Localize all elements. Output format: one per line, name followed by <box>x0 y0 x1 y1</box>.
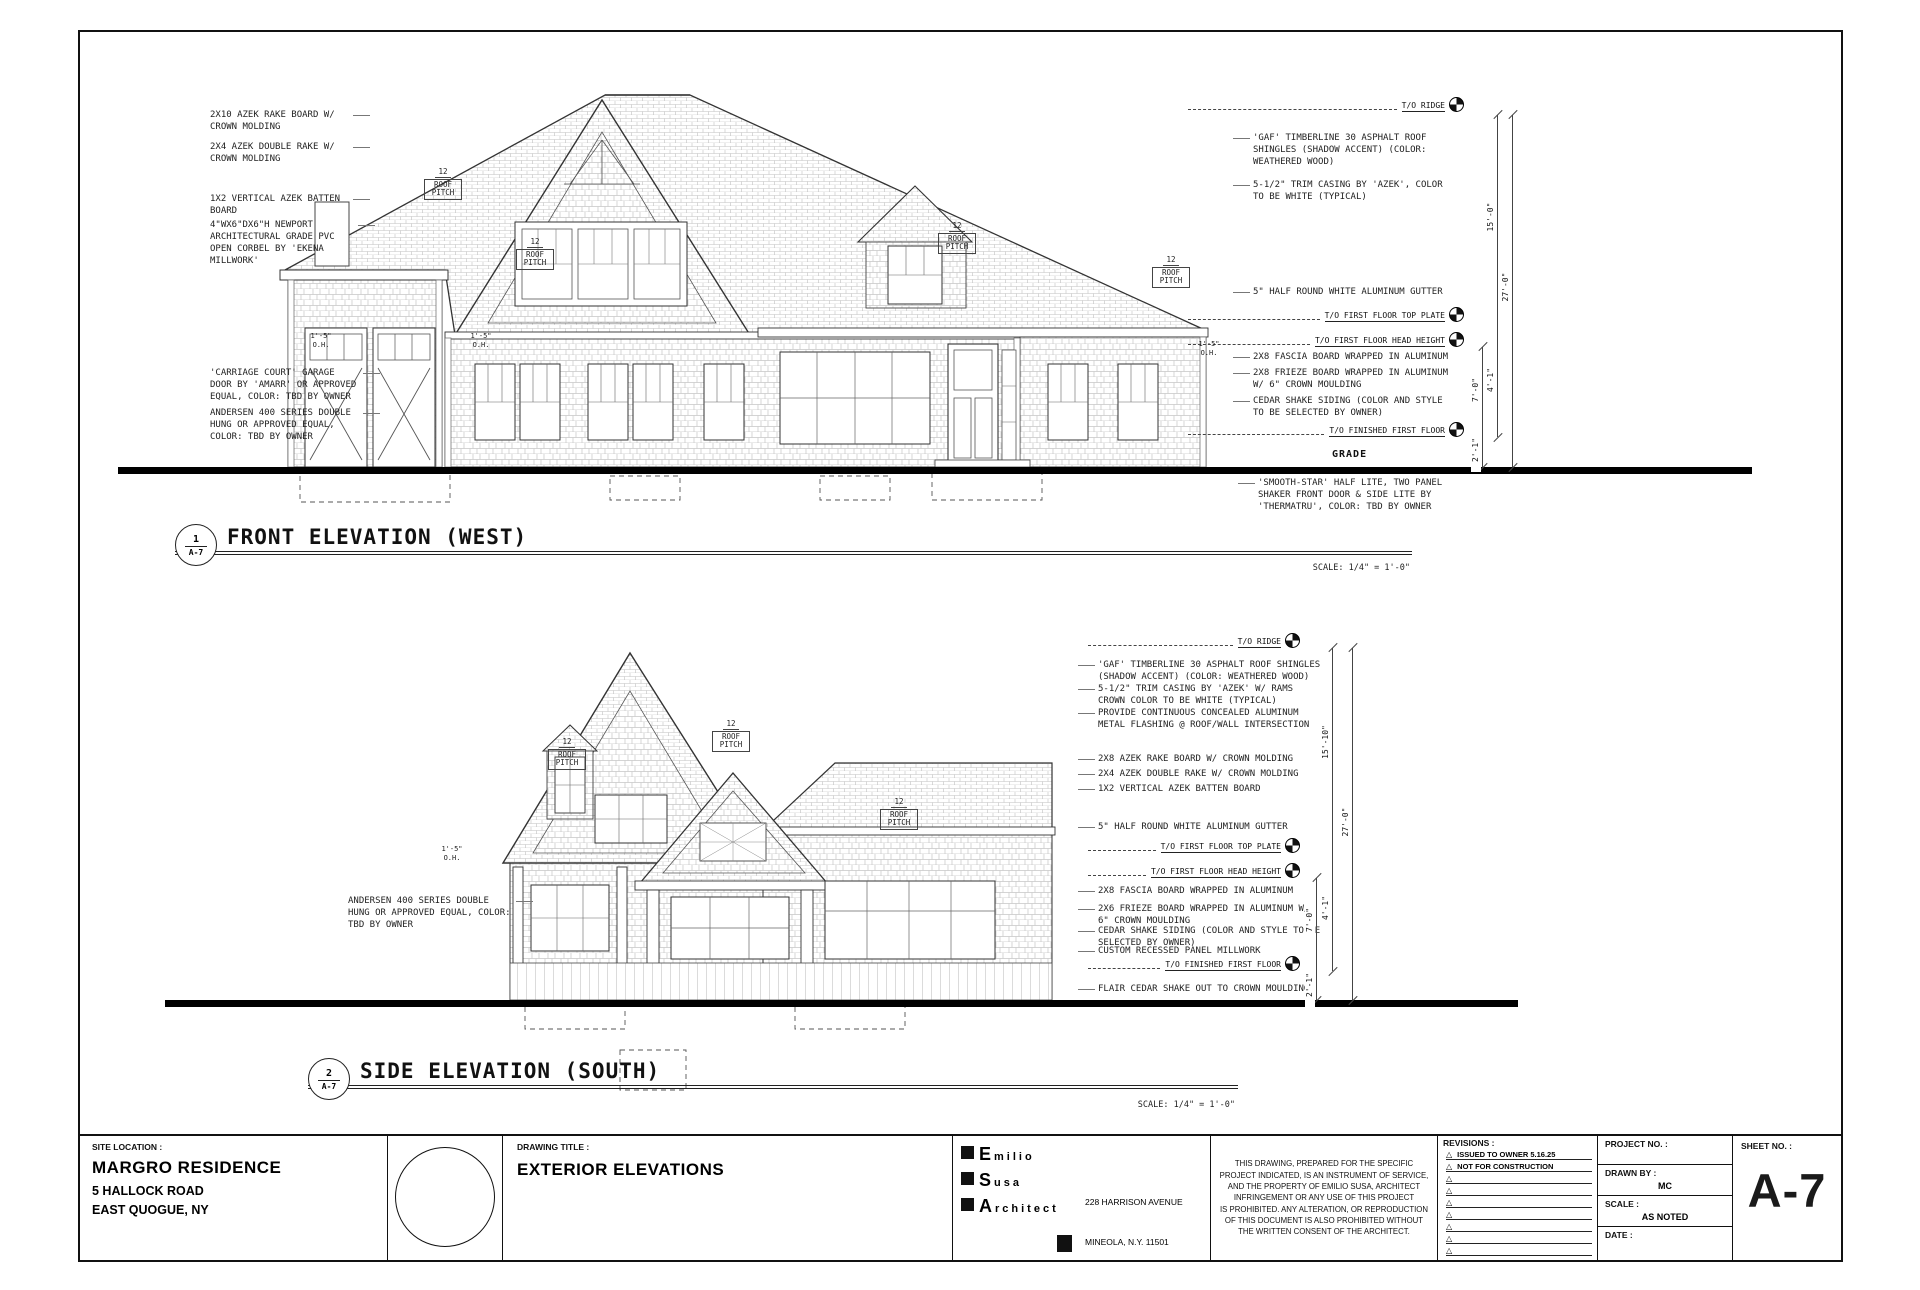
annotation-note: 'GAF' TIMBERLINE 30 ASPHALT ROOF SHINGLE… <box>1098 660 1328 684</box>
roof-pitch-marker: 12ROOF PITCH <box>938 222 976 254</box>
level-label: T/O RIDGE <box>1402 101 1445 112</box>
annotation-note: 5-1/2" TRIM CASING BY 'AZEK' W/ RAMS CRO… <box>1098 684 1318 708</box>
revision-row <box>1446 1184 1592 1196</box>
level-line: T/O FIRST FLOOR HEAD HEIGHT <box>1088 863 1300 878</box>
drawing-title-cell: DRAWING TITLE : EXTERIOR ELEVATIONS <box>503 1136 953 1260</box>
dimension-line <box>1316 878 1317 1000</box>
datum-icon <box>1449 307 1464 322</box>
annotation-note: 'SMOOTH-STAR' HALF LITE, TWO PANEL SHAKE… <box>1258 478 1458 514</box>
project-no-label: PROJECT NO. : <box>1605 1139 1725 1149</box>
revision-triangle-icon <box>1446 1175 1452 1183</box>
annotation-note: PROVIDE CONTINUOUS CONCEALED ALUMINUM ME… <box>1098 708 1328 732</box>
annotation-note: 2x8 FRIEZE BOARD WRAPPED IN ALUMINUM W/ … <box>1253 368 1453 392</box>
level-label: T/O FIRST FLOOR TOP PLATE <box>1325 311 1445 322</box>
level-label: T/O FIRST FLOOR TOP PLATE <box>1161 842 1281 853</box>
revision-row: ISSUED TO OWNER 5.16.25 <box>1446 1148 1592 1160</box>
view-number: 1 <box>185 534 207 547</box>
view-number: 2 <box>318 1068 340 1081</box>
dimension-label: 15'-10" <box>1321 720 1331 764</box>
annotation-note: 2x8 AZEK RAKE BOARD w/ CROWN MOLDING <box>1098 754 1338 766</box>
annotation-note: 'CARRIAGE COURT' GARAGE DOOR BY 'AMARR' … <box>210 368 360 404</box>
front-footings <box>300 472 1042 502</box>
roof-pitch-marker: 12ROOF PITCH <box>548 738 586 770</box>
architect-address-line: MINEOLA, N.Y. 11501 <box>1085 1236 1211 1249</box>
view-title-text: SIDE ELEVATION (SOUTH) <box>360 1059 660 1083</box>
sheet-number: A-7 <box>1741 1163 1833 1218</box>
revisions-label: REVISIONS : <box>1443 1138 1592 1148</box>
annotation-note: 4"Wx6"Dx6"H NEWPORT ARCHITECTURAL GRADE … <box>210 220 355 268</box>
side-base-skirt <box>510 963 1052 1000</box>
annotation-note: 1x2 VERTICAL AZEK BATTEN BOARD <box>210 194 350 218</box>
level-label: T/O FINISHED FIRST FLOOR <box>1165 960 1281 971</box>
level-line: T/O FIRST FLOOR TOP PLATE <box>1188 307 1464 322</box>
date-label: DATE : <box>1605 1230 1725 1240</box>
annotation-note: ANDERSEN 400 SERIES DOUBLE HUNG OR APPRO… <box>210 408 360 444</box>
view-sheet-ref: A-7 <box>322 1081 336 1091</box>
revision-text: ISSUED TO OWNER 5.16.25 <box>1455 1150 1555 1159</box>
dimension-label: 7'-0" <box>1471 368 1481 412</box>
site-location-label: SITE LOCATION : <box>92 1142 375 1152</box>
overhang-label: 1'-5" O.H. <box>306 332 336 350</box>
annotation-note: 2x8 FASCIA BOARD WRAPPED IN ALUMINUM <box>1253 352 1463 364</box>
revision-triangle-icon <box>1446 1247 1452 1255</box>
revision-row: NOT FOR CONSTRUCTION <box>1446 1160 1592 1172</box>
roof-pitch-marker: 12ROOF PITCH <box>1152 256 1190 288</box>
view-title-text: FRONT ELEVATION (WEST) <box>227 525 527 549</box>
datum-icon <box>1449 332 1464 347</box>
revisions-cell: REVISIONS : ISSUED TO OWNER 5.16.25 NOT … <box>1438 1136 1598 1260</box>
revision-row <box>1446 1244 1592 1256</box>
revision-triangle-icon <box>1446 1199 1452 1207</box>
dimension-line <box>1512 115 1513 467</box>
square-bullet-icon <box>961 1146 974 1159</box>
site-address-line2: EAST QUOGUE, NY <box>92 1201 375 1220</box>
logo-cell <box>388 1136 503 1260</box>
revision-row <box>1446 1220 1592 1232</box>
dimension-label: 4'-1" <box>1486 358 1496 402</box>
architect-name-line: Architect <box>979 1196 1059 1217</box>
dimension-label: 27'-0" <box>1341 800 1351 844</box>
dimension-label: 27'-0" <box>1501 265 1511 309</box>
annotation-note: 2x6 FRIEZE BOARD WRAPPED IN ALUMINUM W/ … <box>1098 904 1323 928</box>
revision-triangle-icon <box>1446 1235 1452 1243</box>
scale-value: AS NOTED <box>1605 1212 1725 1222</box>
drawn-by-value: MC <box>1605 1181 1725 1191</box>
level-label: T/O RIDGE <box>1238 637 1281 648</box>
dimension-label: 7'-0" <box>1305 898 1315 942</box>
level-line: T/O FIRST FLOOR TOP PLATE <box>1088 838 1300 853</box>
revision-triangle-icon <box>1446 1223 1452 1231</box>
roof-pitch-marker: 12ROOF PITCH <box>424 168 462 200</box>
disclaimer-text: THIS DRAWING, PREPARED FOR THE SPECIFIC … <box>1220 1158 1429 1237</box>
annotation-note: ANDERSEN 400 SERIES DOUBLE HUNG OR APPRO… <box>348 896 513 932</box>
dimension-line <box>1332 648 1333 971</box>
grade-line <box>118 467 1752 474</box>
sheet-no-cell: SHEET NO. : A-7 <box>1733 1136 1841 1260</box>
square-bullet-icon <box>961 1198 974 1211</box>
datum-icon <box>1285 633 1300 648</box>
roof-pitch-marker: 12ROOF PITCH <box>516 238 554 270</box>
architect-address-line: 228 HARRISON AVENUE <box>1085 1196 1211 1209</box>
disclaimer-cell: THIS DRAWING, PREPARED FOR THE SPECIFIC … <box>1211 1136 1438 1260</box>
datum-icon <box>1285 863 1300 878</box>
overhang-label: 1'-5" O.H. <box>466 332 496 350</box>
annotation-note: 2x4 AZEK DOUBLE RAKE w/ CROWN MOLDING <box>1098 769 1338 781</box>
logo-circle <box>395 1147 495 1247</box>
revision-triangle-icon <box>1446 1187 1452 1195</box>
scale-label: SCALE : <box>1605 1199 1725 1209</box>
annotation-note: 1x2 VERTICAL AZEK BATTEN BOARD <box>1098 784 1338 796</box>
level-line: T/O FIRST FLOOR HEAD HEIGHT <box>1188 332 1464 347</box>
level-line: T/O RIDGE <box>1088 633 1300 648</box>
front-entry-door <box>935 344 1030 467</box>
annotation-note: 5" HALF ROUND WHITE ALUMINUM GUTTER <box>1098 822 1338 834</box>
annotation-note: 2x4 AZEK DOUBLE RAKE w/ CROWN MOLDING <box>210 142 350 166</box>
architect-cell: Emilio Susa Architect 228 HARRISON AVENU… <box>953 1136 1211 1260</box>
annotation-note: 2x8 FASCIA BOARD WRAPPED IN ALUMINUM <box>1098 886 1338 898</box>
level-label: T/O FIRST FLOOR HEAD HEIGHT <box>1315 336 1445 347</box>
sheet-no-label: SHEET NO. : <box>1741 1141 1833 1151</box>
datum-icon <box>1449 422 1464 437</box>
revision-text: NOT FOR CONSTRUCTION <box>1455 1162 1553 1171</box>
level-line: T/O RIDGE <box>1188 97 1464 112</box>
front-elevation-drawing <box>260 80 1220 512</box>
title-block: SITE LOCATION : MARGRO RESIDENCE 5 HALLO… <box>78 1134 1843 1262</box>
project-info-cell: PROJECT NO. : DRAWN BY : MC SCALE : AS N… <box>1598 1136 1733 1260</box>
annotation-note: 5" HALF ROUND WHITE ALUMINUM GUTTER <box>1253 287 1463 299</box>
grade-label: GRADE <box>1332 449 1367 460</box>
datum-icon <box>1285 838 1300 853</box>
revision-row <box>1446 1208 1592 1220</box>
roof-pitch-marker: 12ROOF PITCH <box>712 720 750 752</box>
level-label: T/O FINISHED FIRST FLOOR <box>1329 426 1445 437</box>
site-name: MARGRO RESIDENCE <box>92 1158 375 1178</box>
dimension-label: 4'-1" <box>1321 886 1331 930</box>
view-marker: 2 A-7 <box>308 1058 350 1100</box>
level-label: T/O FIRST FLOOR HEAD HEIGHT <box>1151 867 1281 878</box>
drawing-title: EXTERIOR ELEVATIONS <box>517 1160 938 1180</box>
drawn-by-label: DRAWN BY : <box>1605 1168 1725 1178</box>
annotation-note: 2x10 AZEK RAKE BOARD w/ CROWN MOLDING <box>210 110 350 134</box>
annotation-note: 'GAF' TIMBERLINE 30 ASPHALT ROOF SHINGLE… <box>1253 133 1453 169</box>
site-location-cell: SITE LOCATION : MARGRO RESIDENCE 5 HALLO… <box>80 1136 388 1260</box>
dimension-label: 2'-1" <box>1471 428 1481 472</box>
architect-name-line: Susa <box>979 1170 1022 1191</box>
annotation-note: FLAIR CEDAR SHAKE OUT TO CROWN MOULDING <box>1098 984 1338 996</box>
dimension-label: 2'-1" <box>1305 963 1315 1007</box>
annotation-note: CEDAR SHAKE SIDING (COLOR AND STYLE TO B… <box>1253 396 1453 420</box>
side-view-title: 2 A-7 SIDE ELEVATION (SOUTH) <box>308 1058 1238 1089</box>
dimension-label: 15'-0" <box>1486 195 1496 239</box>
revision-triangle-icon <box>1446 1151 1452 1159</box>
drawing-title-label: DRAWING TITLE : <box>517 1142 938 1152</box>
overhang-label: 1'-5" O.H. <box>437 845 467 863</box>
square-bullet-icon <box>1057 1235 1072 1252</box>
annotation-note: 5-1/2" TRIM CASING BY 'AZEK', COLOR TO B… <box>1253 180 1453 204</box>
revision-row <box>1446 1172 1592 1184</box>
scale-note: SCALE: 1/4" = 1'-0" <box>1230 563 1410 573</box>
dimension-line <box>1482 347 1483 467</box>
side-elevation-drawing <box>495 645 1105 1095</box>
revision-triangle-icon <box>1446 1163 1452 1171</box>
dimension-line <box>1497 115 1498 437</box>
dimension-line <box>1352 648 1353 1000</box>
level-line: T/O FINISHED FIRST FLOOR <box>1188 422 1464 437</box>
scale-note: SCALE: 1/4" = 1'-0" <box>1055 1100 1235 1110</box>
level-line: T/O FINISHED FIRST FLOOR <box>1088 956 1300 971</box>
datum-icon <box>1449 97 1464 112</box>
revision-triangle-icon <box>1446 1211 1452 1219</box>
site-address-line1: 5 HALLOCK ROAD <box>92 1182 375 1201</box>
revision-row <box>1446 1196 1592 1208</box>
revision-row <box>1446 1232 1592 1244</box>
front-view-title: 1 A-7 FRONT ELEVATION (WEST) <box>175 524 1412 555</box>
view-marker: 1 A-7 <box>175 524 217 566</box>
datum-icon <box>1285 956 1300 971</box>
drawing-sheet: 2x10 AZEK RAKE BOARD w/ CROWN MOLDING 2x… <box>0 0 1920 1290</box>
square-bullet-icon <box>961 1172 974 1185</box>
architect-name-line: Emilio <box>979 1144 1035 1165</box>
overhang-label: 1'-5" O.H. <box>1194 340 1224 358</box>
roof-pitch-marker: 12ROOF PITCH <box>880 798 918 830</box>
garage-door <box>373 328 435 467</box>
view-sheet-ref: A-7 <box>189 547 203 557</box>
